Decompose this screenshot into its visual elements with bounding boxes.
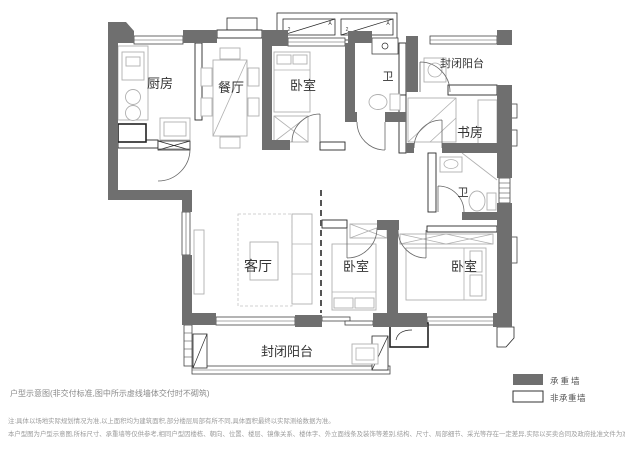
furniture-kitchen — [118, 46, 190, 150]
room-label-kitchen: 厨房 — [147, 76, 173, 91]
disclaimer-line-2: 本户型图为户型示意图,所标尺寸、承重墙等仅供参考,相同户型因楼栋、朝向、位置、楼… — [8, 429, 625, 438]
room-label-bath-east: 卫 — [458, 187, 469, 199]
platform-mark: 2 — [288, 27, 291, 33]
legend-label-load-bearing: 承重墙 — [550, 376, 582, 386]
entry-door — [158, 149, 190, 181]
room-label-dining: 餐厅 — [218, 80, 244, 95]
floor-plan-page: 2 A 2 A — [0, 0, 625, 453]
furniture-dining — [201, 48, 259, 148]
legend-label-non-load-bearing: 非承重墙 — [550, 393, 586, 403]
floor-plan-drawing: 2 A 2 A — [0, 0, 625, 453]
furniture-bedroom-southeast — [400, 234, 493, 300]
room-label-living: 客厅 — [244, 258, 272, 274]
room-label-balcony-northeast: 封闭阳台 — [440, 56, 484, 70]
furniture-balcony-south — [352, 344, 378, 364]
room-label-balcony-south: 封闭阳台 — [261, 344, 313, 359]
furniture-study — [408, 98, 497, 144]
disclaimer-line-1: 注:具体以场地实际规划情况为准,以上面积均为建筑面积,部分楼层局部有所不同,具体… — [8, 416, 335, 425]
furniture-bedroom-north — [274, 52, 310, 142]
legend: 承重墙 非承重墙 — [513, 374, 586, 403]
legend-swatch-load-bearing — [513, 374, 543, 385]
room-label-study: 书房 — [457, 125, 483, 140]
room-label-bedroom-south: 卧室 — [343, 259, 369, 274]
furniture-bath-east — [440, 153, 497, 211]
bath-north-door — [357, 122, 385, 150]
room-label-bedroom-north: 卧室 — [290, 78, 316, 93]
room-label-bedroom-southeast: 卧室 — [451, 259, 477, 274]
plan-caption: 户型示意图(非交付标准,图中所示虚线墙体交付时不砌筑) — [10, 388, 210, 398]
room-label-bath-north: 卫 — [383, 71, 394, 83]
legend-swatch-non-load-bearing — [513, 391, 543, 402]
